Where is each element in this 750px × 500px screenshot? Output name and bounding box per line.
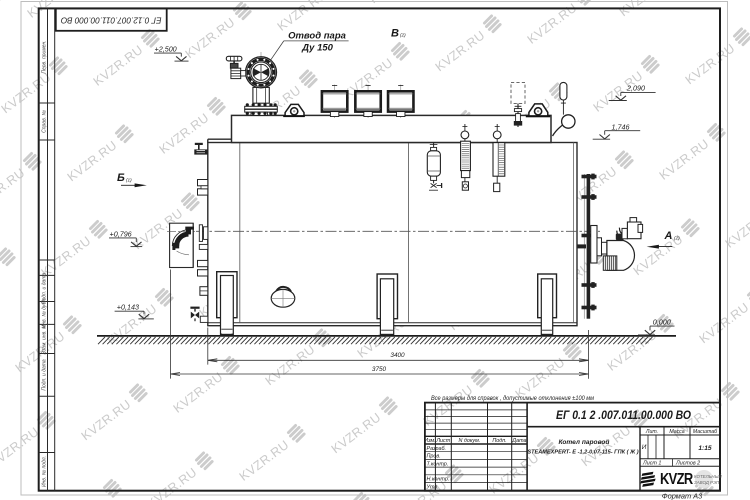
svg-text:Подп.: Подп. xyxy=(492,438,506,444)
svg-text:Утв.: Утв. xyxy=(426,484,439,490)
svg-text:3400: 3400 xyxy=(390,352,405,359)
svg-text:Б: Б xyxy=(117,172,125,184)
svg-text:Масса: Масса xyxy=(669,429,684,435)
svg-text:STEAMEXPERT- Е -1,2-0,07-115-: STEAMEXPERT- Е -1,2-0,07-115- ГПК ( Ж ) xyxy=(527,450,638,456)
svg-text:Н.контр.: Н.контр. xyxy=(427,477,450,483)
svg-text:Формат А3: Формат А3 xyxy=(662,492,703,500)
svg-text:+0,143: +0,143 xyxy=(117,303,139,312)
svg-text:Пров.: Пров. xyxy=(427,454,441,460)
svg-text:KVZR.RU: KVZR.RU xyxy=(275,0,330,34)
svg-text:Лист: Лист xyxy=(435,438,450,444)
svg-text:Масштаб: Масштаб xyxy=(693,429,718,435)
svg-text:KVZR.RU: KVZR.RU xyxy=(0,70,54,116)
svg-text:В: В xyxy=(391,27,399,39)
svg-text:+0,796: +0,796 xyxy=(110,229,132,238)
svg-text:2,090: 2,090 xyxy=(626,84,645,93)
svg-text:KVZR.RU: KVZR.RU xyxy=(171,370,226,416)
svg-text:N докум.: N докум. xyxy=(458,438,480,444)
svg-text:И: И xyxy=(642,444,647,451)
svg-text:KVZR.RU: KVZR.RU xyxy=(697,300,750,346)
svg-text:Взам. инв. №: Взам. инв. № xyxy=(42,323,48,355)
svg-text:KVZR.RU: KVZR.RU xyxy=(367,0,422,6)
svg-text:KVZR.RU: KVZR.RU xyxy=(79,397,134,443)
svg-text:(2): (2) xyxy=(674,235,680,240)
svg-text:Справ. №: Справ. № xyxy=(42,110,48,133)
svg-text:KVZR.RU: KVZR.RU xyxy=(433,28,488,74)
svg-text:Котел паровой: Котел паровой xyxy=(559,438,610,446)
svg-text:Перв. примен.: Перв. примен. xyxy=(42,40,48,73)
svg-text:KVZR.RU: KVZR.RU xyxy=(617,0,672,19)
svg-text:(2): (2) xyxy=(400,33,406,38)
svg-text:Лит.: Лит. xyxy=(645,429,658,435)
svg-text:ЗАВОД РЭП: ЗАВОД РЭП xyxy=(694,480,720,485)
svg-text:Инв. № подл.: Инв. № подл. xyxy=(42,456,48,487)
svg-text:1:15: 1:15 xyxy=(698,445,712,452)
svg-text:КОТЕЛЬНЫЙ: КОТЕЛЬНЫЙ xyxy=(694,474,722,479)
svg-text:Разраб.: Разраб. xyxy=(427,446,447,452)
svg-text:Изм.: Изм. xyxy=(424,438,436,444)
svg-text:3750: 3750 xyxy=(372,366,387,373)
svg-text:KVZR.RU: KVZR.RU xyxy=(579,423,634,469)
svg-text:ЕГ 0.1 2 .007.011.00.000 ВО: ЕГ 0.1 2 .007.011.00.000 ВО xyxy=(556,408,692,422)
svg-text:Листов 2: Листов 2 xyxy=(675,461,700,467)
svg-text:ЕГ 0.12.007.011.00.000 ВО: ЕГ 0.12.007.011.00.000 ВО xyxy=(60,15,161,24)
svg-text:Т.контр.: Т.контр. xyxy=(427,461,449,467)
svg-text:KVZR.RU: KVZR.RU xyxy=(183,15,238,61)
svg-text:Все размеры для справок , допу: Все размеры для справок , допустимые отк… xyxy=(431,394,594,402)
svg-text:KVZR.RU: KVZR.RU xyxy=(65,138,120,184)
svg-text:Дата: Дата xyxy=(511,438,526,444)
svg-text:0,000: 0,000 xyxy=(653,318,671,327)
svg-text:KVZR.RU: KVZR.RU xyxy=(657,137,712,183)
svg-text:1,746: 1,746 xyxy=(612,123,630,132)
svg-text:(1): (1) xyxy=(126,178,132,183)
svg-text:А: А xyxy=(664,230,673,242)
svg-text:KVZR.RU: KVZR.RU xyxy=(723,205,750,251)
svg-text:KVZR.RU: KVZR.RU xyxy=(329,410,384,456)
svg-text:+2,500: +2,500 xyxy=(155,45,177,54)
svg-text:KVZR.RU: KVZR.RU xyxy=(683,41,738,87)
svg-text:KVZR.RU: KVZR.RU xyxy=(0,261,2,307)
svg-text:Ду 150: Ду 150 xyxy=(301,43,334,54)
svg-text:KVZR.RU: KVZR.RU xyxy=(263,342,318,388)
svg-text:KVZR: KVZR xyxy=(660,471,693,488)
svg-text:Подп. и дата: Подп. и дата xyxy=(42,359,48,391)
svg-text:KVZR.RU: KVZR.RU xyxy=(91,43,146,89)
svg-text:KVZR.RU: KVZR.RU xyxy=(237,438,292,484)
svg-text:Отвод пара: Отвод пара xyxy=(288,31,346,42)
svg-text:KVZR.RU: KVZR.RU xyxy=(421,383,476,429)
svg-text:Лист 1: Лист 1 xyxy=(642,461,661,467)
svg-text:KVZR.RU: KVZR.RU xyxy=(0,166,28,212)
